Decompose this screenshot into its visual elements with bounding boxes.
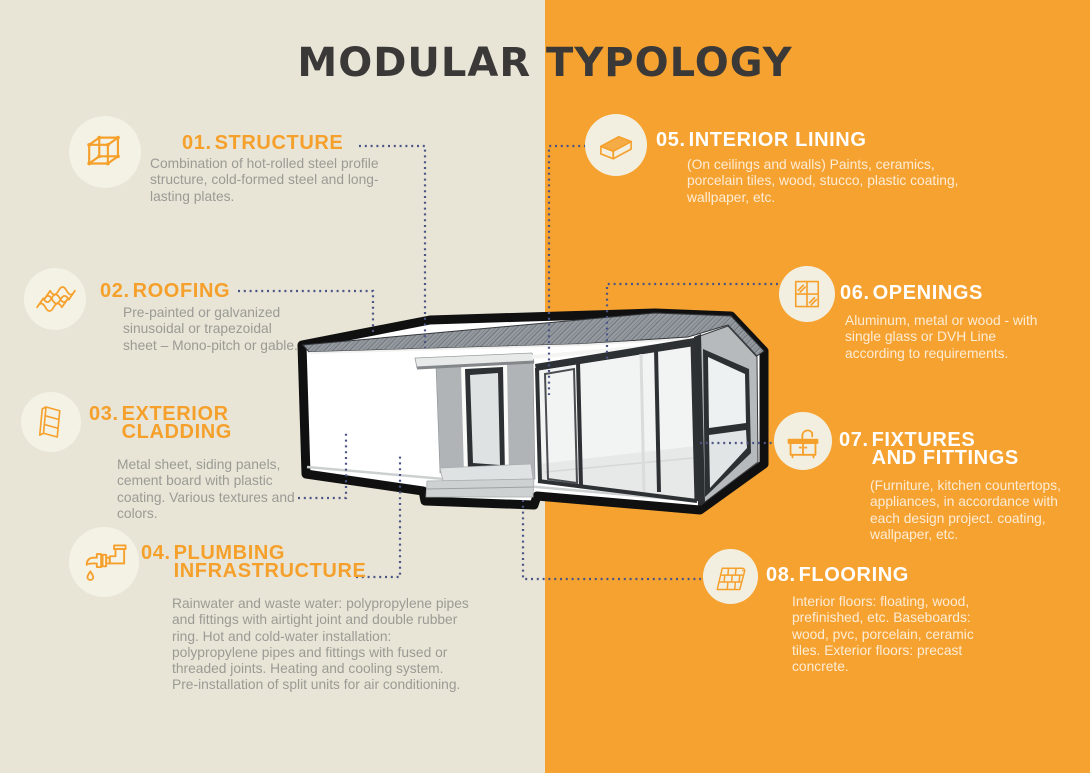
section-title-line: ROOFING bbox=[133, 282, 231, 300]
section-body: (On ceilings and walls) Paints, ceramics… bbox=[687, 157, 959, 206]
section-body: Interior floors: floating, wood, prefini… bbox=[792, 594, 992, 675]
section-heading: 04. PLUMBINGINFRASTRUCTURE bbox=[141, 544, 366, 580]
section-number: 07. bbox=[839, 431, 869, 449]
section-title-line: INFRASTRUCTURE bbox=[174, 562, 367, 580]
section-body: Metal sheet, siding panels, cement board… bbox=[117, 457, 299, 522]
section-heading: 03. EXTERIORCLADDING bbox=[89, 405, 232, 441]
section-title-line: OPENINGS bbox=[873, 284, 983, 302]
interior-lining-icon-circle bbox=[585, 114, 647, 176]
infographic-canvas: MODULAR TYPOLOGY bbox=[0, 0, 1090, 773]
section-number: 01. bbox=[182, 134, 212, 152]
roofing-icon-circle bbox=[24, 268, 86, 330]
openings-icon-circle bbox=[779, 266, 835, 322]
wall-panel-icon bbox=[594, 123, 638, 167]
section-body: Combination of hot-rolled steel profile … bbox=[150, 156, 412, 205]
section-title-line: INTERIOR LINING bbox=[689, 131, 867, 149]
plumbing-icon-circle bbox=[69, 527, 139, 597]
roof-sheet-icon bbox=[33, 277, 77, 321]
cube-structure-icon bbox=[82, 129, 128, 175]
section-heading: 07. FIXTURESAND FITTINGS bbox=[839, 431, 1019, 467]
entry-steps bbox=[426, 464, 534, 497]
section-number: 08. bbox=[766, 566, 796, 584]
section-heading: 01. STRUCTURE bbox=[182, 134, 343, 152]
section-body: (Furniture, kitchen countertops, applian… bbox=[870, 478, 1086, 543]
house bbox=[302, 313, 764, 510]
section-heading: 06. OPENINGS bbox=[840, 284, 983, 302]
section-title-line: FLOORING bbox=[799, 566, 909, 584]
window-icon bbox=[787, 274, 827, 314]
fixtures-icon-circle bbox=[774, 412, 832, 470]
section-heading: 08. FLOORING bbox=[766, 566, 909, 584]
section-number: 04. bbox=[141, 544, 171, 562]
entry-door-glass bbox=[470, 373, 500, 465]
section-number: 06. bbox=[840, 284, 870, 302]
section-number: 02. bbox=[100, 282, 130, 300]
sink-icon bbox=[782, 420, 824, 462]
section-title-line: CLADDING bbox=[122, 423, 232, 441]
section-title-line: AND FITTINGS bbox=[872, 449, 1019, 467]
section-body: Aluminum, metal or wood - with single gl… bbox=[845, 313, 1057, 362]
sliding-glass-doors bbox=[535, 338, 698, 501]
section-heading: 02. ROOFING bbox=[100, 282, 230, 300]
cladding-icon-circle bbox=[21, 392, 81, 452]
flooring-icon-circle bbox=[703, 549, 758, 604]
section-body: Pre-painted or galvanized sinusoidal or … bbox=[123, 305, 307, 354]
plumbing-pipe-icon bbox=[81, 539, 127, 585]
section-body: Rainwater and waste water: polypropylene… bbox=[172, 596, 472, 694]
section-heading: 05. INTERIOR LINING bbox=[656, 131, 867, 149]
section-title-line: STRUCTURE bbox=[215, 134, 344, 152]
cladding-panels-icon bbox=[31, 402, 71, 442]
section-number: 03. bbox=[89, 405, 119, 423]
section-number: 05. bbox=[656, 131, 686, 149]
floor-planks-icon bbox=[711, 557, 751, 597]
structure-icon-circle bbox=[69, 116, 141, 188]
